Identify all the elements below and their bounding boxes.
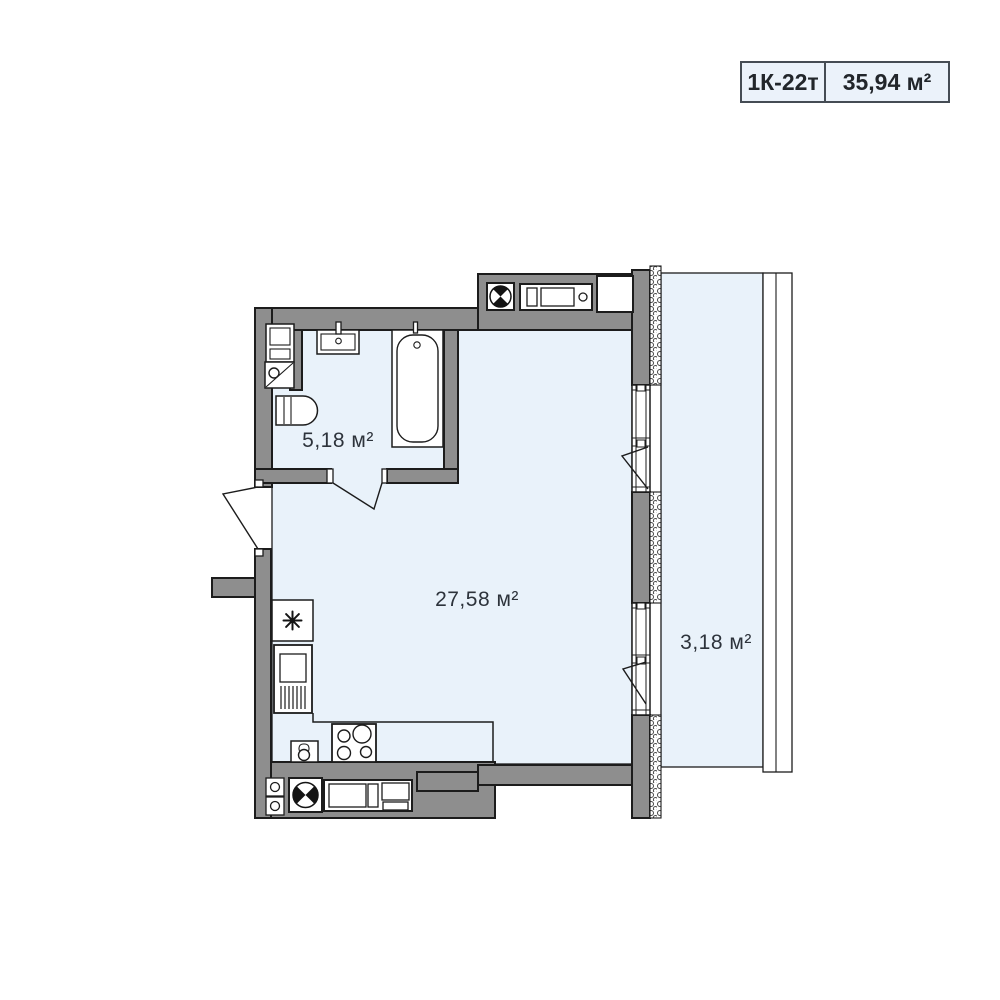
bottom-wall-right <box>478 765 640 785</box>
insulation-hatch <box>650 266 661 818</box>
right-wall-segment-c <box>632 715 650 818</box>
right-wall-segment-b <box>632 492 650 603</box>
ventilation-shaft-icon <box>487 283 514 310</box>
balcony-floor <box>661 273 792 772</box>
washing-machine-cabinet <box>266 324 294 362</box>
bathroom-bottom-wall-left <box>255 469 331 483</box>
living-kitchen-area-label: 27,58 м² <box>435 588 519 611</box>
bottom-wall-ledge <box>417 772 478 791</box>
left-wall-outer-stub <box>212 578 255 597</box>
bathroom-area-label: 5,18 м² <box>302 429 374 452</box>
kitchen-sink <box>291 741 318 762</box>
floor-plan-page: 1К-22т 35,94 м² <box>0 0 1000 1000</box>
kitchen-window-duct <box>324 780 412 811</box>
balcony-window-lower <box>632 603 650 715</box>
ventilation-shaft-icon-kitchen <box>289 778 322 812</box>
pipe-risers <box>266 778 284 815</box>
bathroom-bottom-wall-right <box>387 469 458 483</box>
bathroom-right-wall <box>444 330 458 483</box>
duct-box <box>520 284 592 310</box>
right-wall-segment-a <box>632 270 650 385</box>
entrance-door-swing <box>223 487 258 549</box>
balcony-glazing <box>763 273 792 772</box>
bathtub <box>392 322 443 447</box>
floor-plan-drawing: 5,18 м² 27,58 м² 3,18 м² <box>0 0 1000 1000</box>
toilet <box>276 396 318 425</box>
pipe-riser-niche <box>265 362 294 388</box>
stove <box>332 724 376 762</box>
top-wall-window <box>597 276 633 312</box>
balcony-window-upper <box>632 385 650 492</box>
water-heater-icon <box>272 600 313 641</box>
balcony-area-label: 3,18 м² <box>680 631 752 654</box>
fridge <box>274 645 312 713</box>
